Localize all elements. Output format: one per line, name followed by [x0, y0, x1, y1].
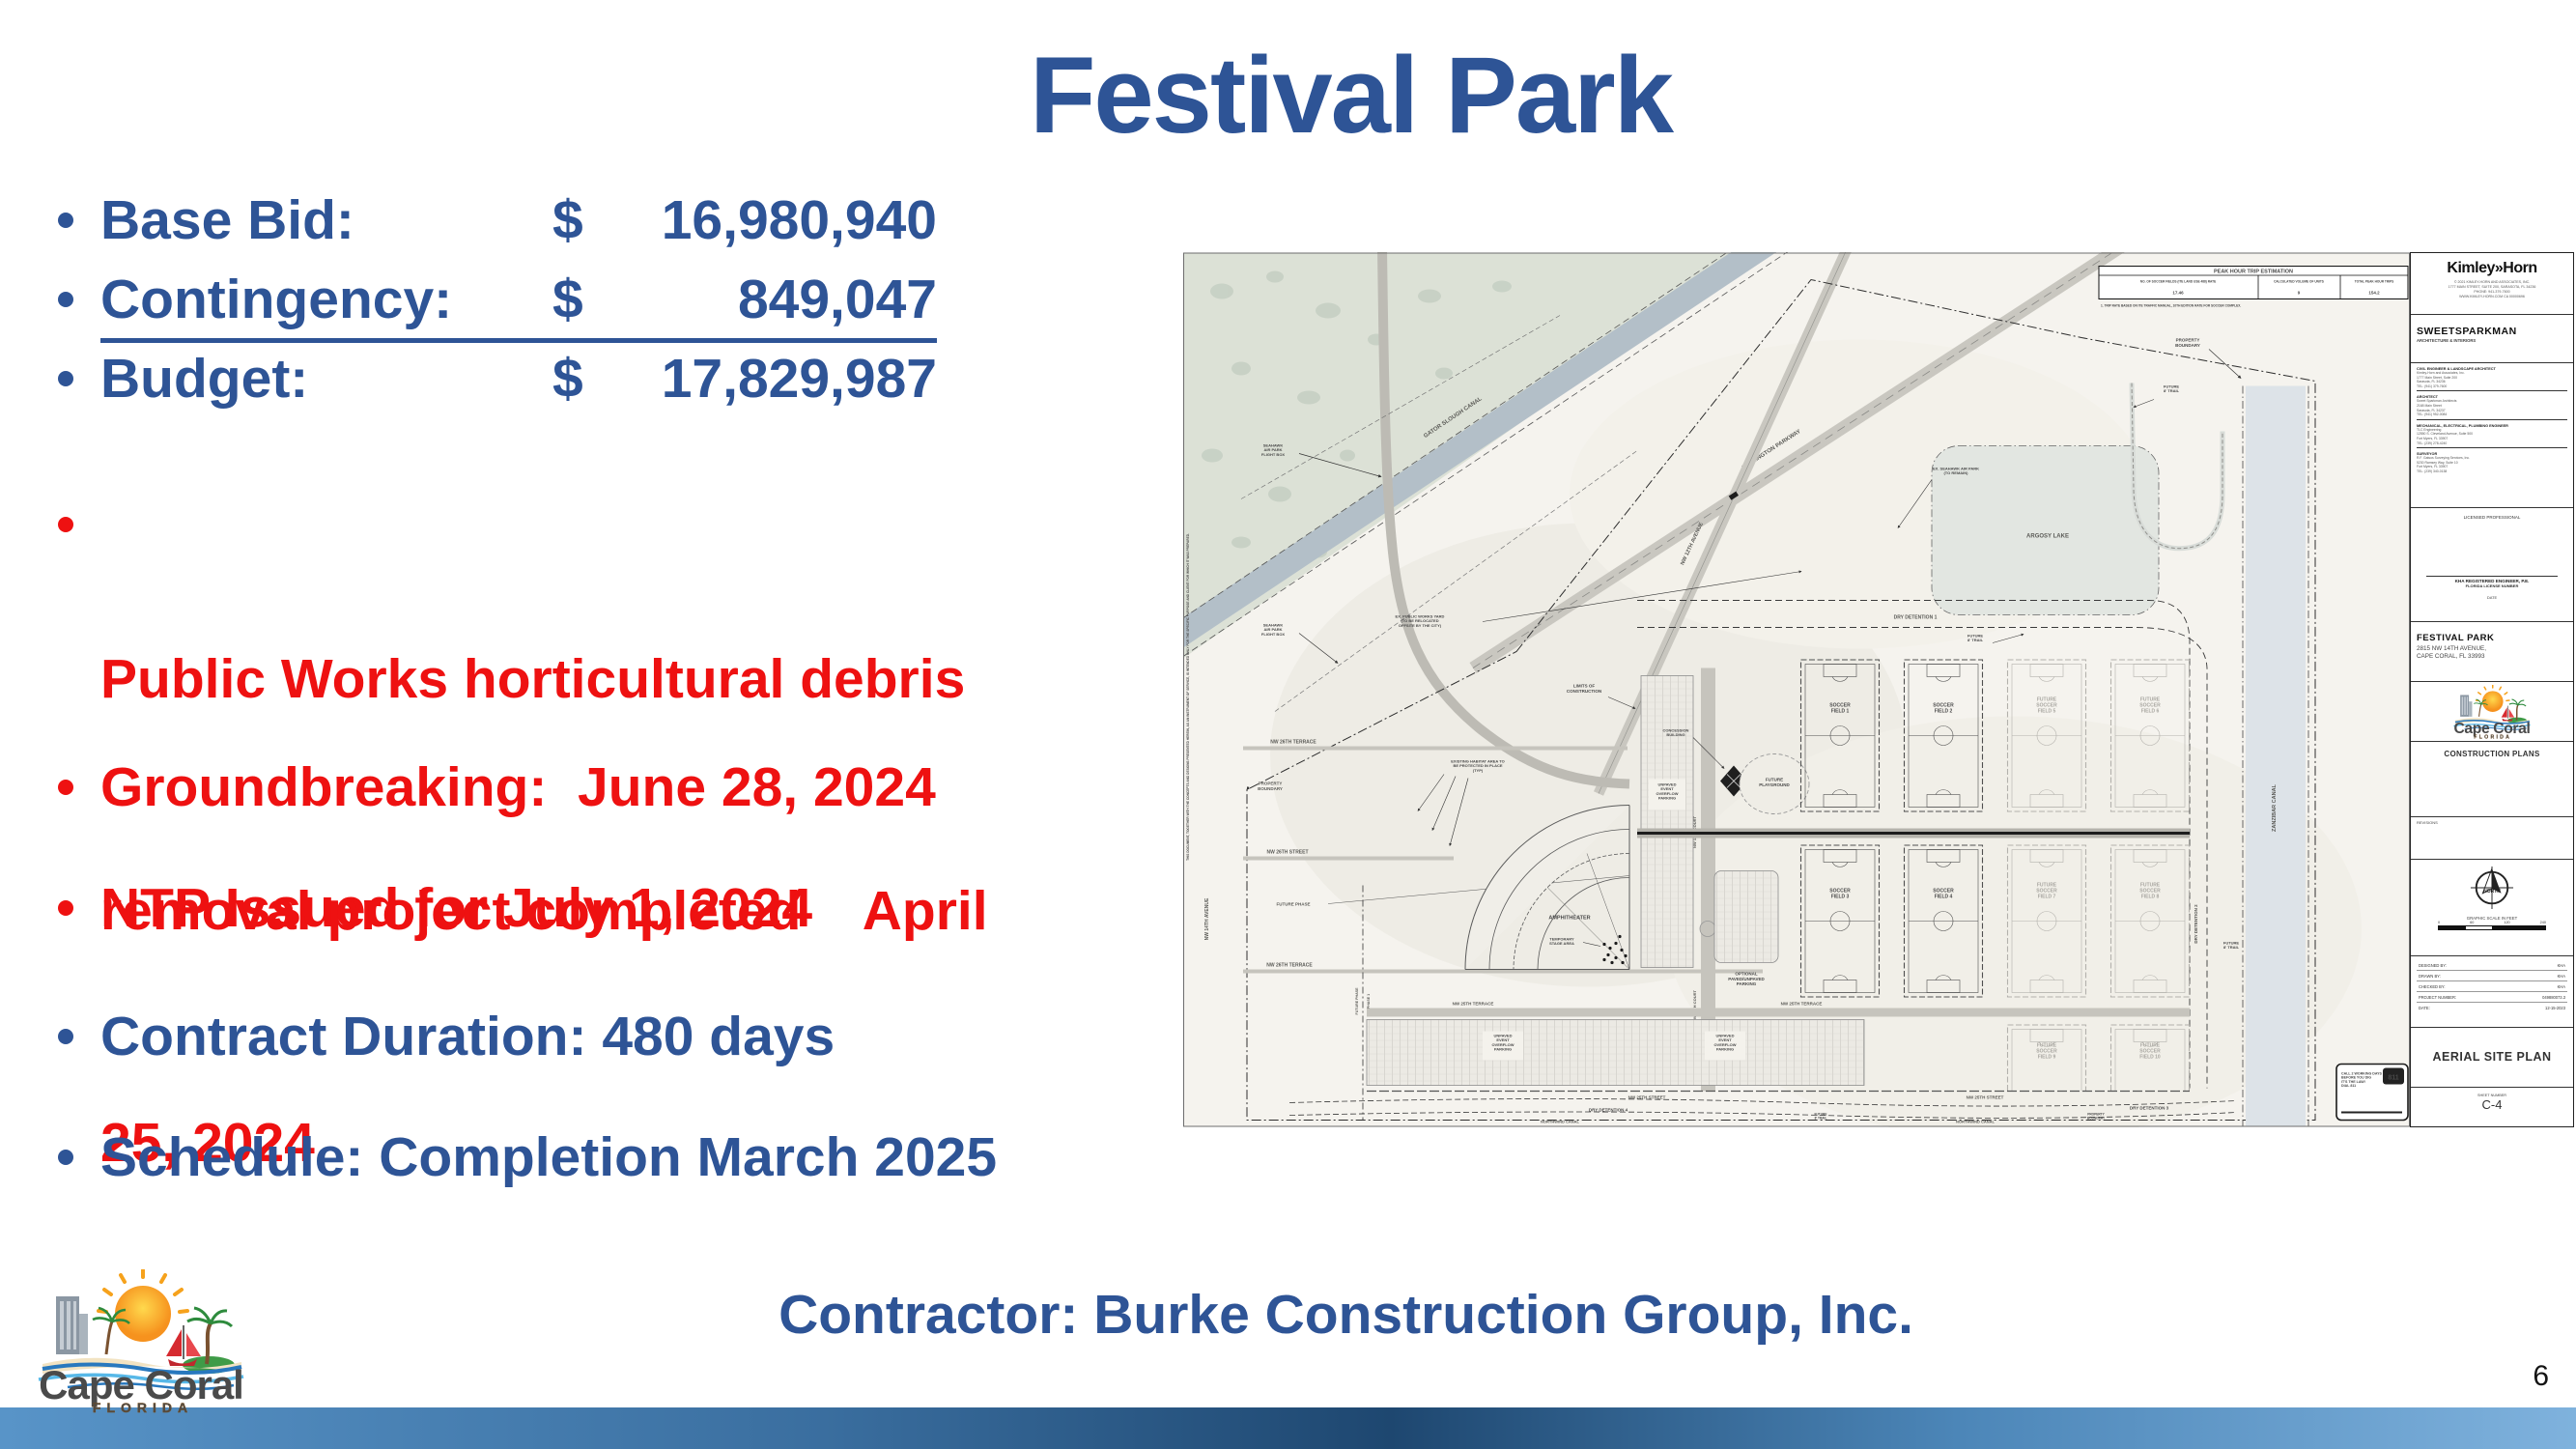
sheet-number: C-4 — [2417, 1097, 2567, 1112]
amphitheater-label: AMPHITHEATER — [1548, 916, 1590, 922]
cape-coral-logo-small — [2450, 685, 2534, 739]
trip-table-col: TOTAL PEAK HOUR TRIPS — [2355, 280, 2394, 284]
future-field-label: FUTURESOCCERFIELD 8 — [2139, 883, 2161, 900]
future-field-label: FUTURESOCCERFIELD 10 — [2139, 1043, 2161, 1061]
nw25-terrace-label: NW 25TH TERRACE — [1453, 1002, 1494, 1007]
soccer-field-label: SOCCERFIELD 2 — [1933, 703, 1954, 715]
bullet-text: Schedule: Completion March 2025 — [100, 1119, 997, 1196]
base-bid-label: Base Bid: — [100, 187, 552, 253]
aerial-site-plan-drawing: Cape Coral FLORIDA — [1183, 252, 2410, 1127]
footer-accent-bar — [0, 1407, 2576, 1449]
list-item: NTP Issued for July 1, 2024 — [58, 869, 812, 947]
svg-text:FUTURE8' TRAIL: FUTURE8' TRAIL — [2223, 941, 2240, 951]
future-field-label: FUTURESOCCERFIELD 5 — [2036, 697, 2057, 715]
list-item: Budget: $17,829,987 — [58, 346, 937, 425]
revisions-label: REVISIONS — [2417, 820, 2567, 825]
budget-label: Budget: — [100, 346, 552, 412]
event-overflow-parking-strip: UNPAVEDEVENTOVERFLOWPARKING — [1641, 676, 1693, 968]
zanzibar-canal-label: ZANZIBAR CANAL — [2272, 783, 2278, 832]
meta-value: KHA — [2558, 963, 2565, 968]
nw26-street-label: NW 26TH STREET — [1266, 850, 1308, 856]
future-field-label: FUTURESOCCERFIELD 6 — [2139, 697, 2161, 715]
north-label: NORTH — [2417, 889, 2567, 895]
base-bid-amount: $16,980,940 — [552, 187, 937, 253]
scale-tick: 240 — [2540, 921, 2546, 924]
trip-table-col: CALCULATED VOLUME OF UNITS — [2274, 280, 2324, 284]
construction-plans-label: CONSTRUCTION PLANS — [2417, 750, 2567, 758]
trip-table-col: NO. OF SOCCER FIELDS (ITE LAND USE 488) … — [2140, 280, 2216, 284]
svg-text:FUTURE PHASE: FUTURE PHASE — [1276, 902, 1310, 907]
licensed-label: LICENSED PROFESSIONAL — [2417, 515, 2567, 520]
sheet-title-block: AERIAL SITE PLAN — [2411, 1028, 2573, 1088]
north-arrow-icon — [2470, 866, 2514, 910]
client-logo-block — [2411, 682, 2573, 742]
consultant: ARCHITECT Sweet Sparkman Architects 2168… — [2417, 391, 2567, 419]
soccer-field-label: SOCCERFIELD 1 — [1829, 703, 1851, 715]
soccer-field-label: SOCCERFIELD 4 — [1933, 889, 1954, 900]
consultant: MECHANICAL, ELECTRICAL, PLUMBING ENGINEE… — [2417, 420, 2567, 448]
trip-table-val: 17.46 — [2172, 291, 2184, 296]
event-overflow-parking-south: UNPAVEDEVENTOVERFLOWPARKING UNPAVEDEVENT… — [1367, 1020, 1864, 1086]
north-scale-block: NORTH GRAPHIC SCALE IN FEET 0 60 120 240 — [2411, 860, 2573, 956]
dry-detention-3-label: DRY DETENTION 3 — [2130, 1106, 2169, 1111]
title-block: Kimley»Horn © 2021 KIMLEY-HORN AND ASSOC… — [2410, 252, 2574, 1127]
meta-value: 12-15-2023 — [2545, 1006, 2565, 1010]
scale-bar — [2438, 925, 2546, 930]
dig-811-number: 811 — [2388, 1075, 2398, 1082]
svg-text:FUTURE8' TRAIL: FUTURE8' TRAIL — [2164, 384, 2180, 394]
revisions-block: REVISIONS — [2411, 817, 2573, 860]
pe-license: FLORIDA LICENSE NUMBER — [2417, 583, 2567, 588]
project-name: FESTIVAL PARK — [2417, 633, 2567, 643]
future-field-label: FUTURESOCCERFIELD 9 — [2036, 1043, 2057, 1061]
bullet-icon — [58, 292, 73, 307]
kimley-horn-logo: Kimley»Horn — [2417, 260, 2567, 277]
bullet-icon — [58, 517, 73, 532]
future-trail-label: FUTURE8' TRAIL — [2223, 941, 2240, 951]
future-phase-label: FUTURE PHASE — [1355, 987, 1359, 1015]
site-plan-figure: Cape Coral FLORIDA — [1183, 252, 2574, 1127]
cape-coral-logo — [35, 1269, 247, 1414]
consultant: CIVIL ENGINEER & LANDSCAPE ARCHITECT Kim… — [2417, 363, 2567, 391]
bullet-text: Groundbreaking: June 28, 2024 — [100, 749, 936, 826]
scale-tick: 60 — [2470, 921, 2474, 924]
firm-line: WWW.KIMLEY-HORN.COM CA 00000696 — [2417, 295, 2567, 299]
sweetsparkman-logo: SWEETSPARKMAN — [2417, 326, 2567, 337]
call-811-box: CALL 2 WORKING DAYSBEFORE YOU DIGIT'S TH… — [2336, 1065, 2408, 1121]
bullet-icon — [58, 213, 73, 228]
trip-table-title: PEAK HOUR TRIP ESTIMATION — [2214, 270, 2293, 275]
contractor-line: Contractor: Burke Construction Group, In… — [778, 1283, 1913, 1347]
scale-tick: 120 — [2504, 921, 2509, 924]
bullet-icon — [58, 780, 73, 795]
meta-label: DESIGNED BY: — [2419, 963, 2447, 968]
concession-label: CONCESSIONBUILDING — [1663, 728, 1689, 738]
dry-detention-4-label: DRY DETENTION 4 — [1589, 1108, 1628, 1113]
bullet-text: Contract Duration: 480 days — [100, 998, 835, 1075]
project-address: CAPE CORAL, FL 33993 — [2417, 653, 2567, 661]
page-title: Festival Park — [0, 33, 2576, 157]
future-playground: FUTUREPLAYGROUND — [1740, 754, 1809, 814]
date-label: DATE — [2417, 595, 2567, 600]
meta-label: DATE: — [2419, 1006, 2430, 1010]
meta-label: DRAWN BY: — [2419, 974, 2441, 979]
trip-table-val: 154.2 — [2368, 291, 2380, 296]
bullet-icon — [58, 1029, 73, 1044]
list-item: Schedule: Completion March 2025 — [58, 1119, 997, 1196]
nw26-terrace-label: NW 26TH TERRACE — [1266, 963, 1313, 969]
contingency-amount: $849,047 — [552, 267, 937, 332]
project-block: FESTIVAL PARK 2815 NW 14TH AVENUE, CAPE … — [2411, 622, 2573, 682]
budget-amount: $17,829,987 — [552, 346, 937, 412]
nw13-court-label: NW 13TH COURT — [1692, 990, 1697, 1022]
signature-line — [2426, 576, 2558, 577]
dry-detention-1-label: DRY DETENTION 1 — [1894, 615, 1938, 621]
nw14-avenue-label: NW 14TH AVENUE — [1204, 897, 1210, 940]
scale-tick: 0 — [2438, 921, 2440, 924]
bullet-icon — [58, 1150, 73, 1165]
zanzibar-canal: ZANZIBAR CANAL — [2243, 386, 2308, 1127]
meta-value: KHA — [2558, 974, 2565, 979]
sheet-number-block: SHEET NUMBER C-4 — [2411, 1088, 2573, 1126]
plans-block: CONSTRUCTION PLANS — [2411, 742, 2573, 817]
contingency-label: Contingency: — [100, 267, 552, 332]
northwind-canal-label: NORTHWIND CANAL — [1541, 1120, 1580, 1124]
northwind-canal-label: NORTHWIND CANAL — [1956, 1120, 1996, 1124]
unpaved-parking-label: UNPAVEDEVENTOVERFLOWPARKING — [1713, 1034, 1736, 1052]
property-boundary-label: PROPERTYBOUNDARY — [2087, 1113, 2106, 1121]
list-item: Groundbreaking: June 28, 2024 — [58, 749, 936, 826]
svg-text:PROPERTYBOUNDARY: PROPERTYBOUNDARY — [2175, 338, 2200, 348]
svg-text:EX. PUBLIC WORKS YARD(TO BE RE: EX. PUBLIC WORKS YARD(TO BE RELOCATEDOFF… — [1396, 614, 1445, 628]
presentation-slide: Festival Park Base Bid: $16,980,940 Cont… — [0, 0, 2576, 1449]
field-spine-road — [1637, 829, 2190, 838]
svg-text:PROPERTYBOUNDARY: PROPERTYBOUNDARY — [1258, 781, 1283, 791]
meta-value: 049880073.3 — [2542, 995, 2565, 1000]
sheet-title: AERIAL SITE PLAN — [2417, 1050, 2567, 1064]
edge-disclaimer: THIS DOCUMENT, TOGETHER WITH THE CONCEPT… — [1186, 533, 1190, 861]
soccer-field-label: SOCCERFIELD 3 — [1829, 889, 1851, 900]
architect-block: SWEETSPARKMAN ARCHITECTURE & INTERIORS — [2411, 315, 2573, 363]
phase1-label: PHASE 1 — [1367, 994, 1371, 1009]
dry-detention-2-label: DRY DETENTION 2 — [2194, 904, 2198, 944]
nw25-street-label: NW 25TH STREET — [1967, 1095, 2004, 1100]
list-item: Base Bid: $16,980,940 — [58, 187, 937, 267]
meta-block: DESIGNED BY:KHA DRAWN BY:KHA CHECKED BY:… — [2411, 956, 2573, 1028]
bullet-icon — [58, 900, 73, 916]
svg-text:SEAHAWKAIR PARKFLIGHT BOX: SEAHAWKAIR PARKFLIGHT BOX — [1261, 443, 1286, 457]
page-number: 6 — [2533, 1360, 2549, 1393]
nw25-terrace-road — [1367, 1009, 2190, 1017]
list-item: Contract Duration: 480 days — [58, 998, 835, 1075]
firm-block: Kimley»Horn © 2021 KIMLEY-HORN AND ASSOC… — [2411, 253, 2573, 315]
consultant: SURVEYOR R.F. Gatsos Surveying Services,… — [2417, 448, 2567, 475]
project-address: 2815 NW 14TH AVENUE, — [2417, 645, 2567, 653]
svg-text:FUTURE8' TRAIL: FUTURE8' TRAIL — [1967, 634, 1984, 643]
architect-subtitle: ARCHITECTURE & INTERIORS — [2417, 338, 2567, 343]
svg-text:SEAHAWKAIR PARKFLIGHT BOX: SEAHAWKAIR PARKFLIGHT BOX — [1261, 623, 1286, 637]
future-field-label: FUTURESOCCERFIELD 7 — [2036, 883, 2057, 900]
future-trail-label: FUTURE8' TRAIL — [1815, 1113, 1827, 1121]
licensed-block: LICENSED PROFESSIONAL KHA REGISTERED ENG… — [2411, 508, 2573, 622]
meta-label: PROJECT NUMBER: — [2419, 995, 2456, 1000]
meta-label: CHECKED BY: — [2419, 984, 2446, 989]
unpaved-parking-label: UNPAVEDEVENTOVERFLOWPARKING — [1491, 1034, 1514, 1052]
unpaved-parking-label: UNPAVEDEVENTOVERFLOWPARKING — [1656, 782, 1678, 801]
consultants-block: CIVIL ENGINEER & LANDSCAPE ARCHITECT Kim… — [2411, 363, 2573, 508]
meta-value: KHA — [2558, 984, 2565, 989]
list-item: Contingency: $849,047 — [58, 267, 937, 346]
nw26-terrace-label: NW 26TH TERRACE — [1270, 740, 1316, 746]
trip-table-note: 1. TRIP RATE BASED ON ITE TRAFFIC MANUAL… — [2101, 304, 2241, 308]
argosy-lake-label: ARGOSY LAKE — [2026, 534, 2069, 540]
bullet-text: NTP Issued for July 1, 2024 — [100, 869, 812, 947]
financial-list: Base Bid: $16,980,940 Contingency: $849,… — [58, 187, 937, 425]
nw25-terrace-label: NW 25TH TERRACE — [1781, 1002, 1823, 1007]
svg-text:TEMPORARYSTAGE AREA: TEMPORARYSTAGE AREA — [1549, 937, 1574, 947]
bullet-icon — [58, 371, 73, 386]
